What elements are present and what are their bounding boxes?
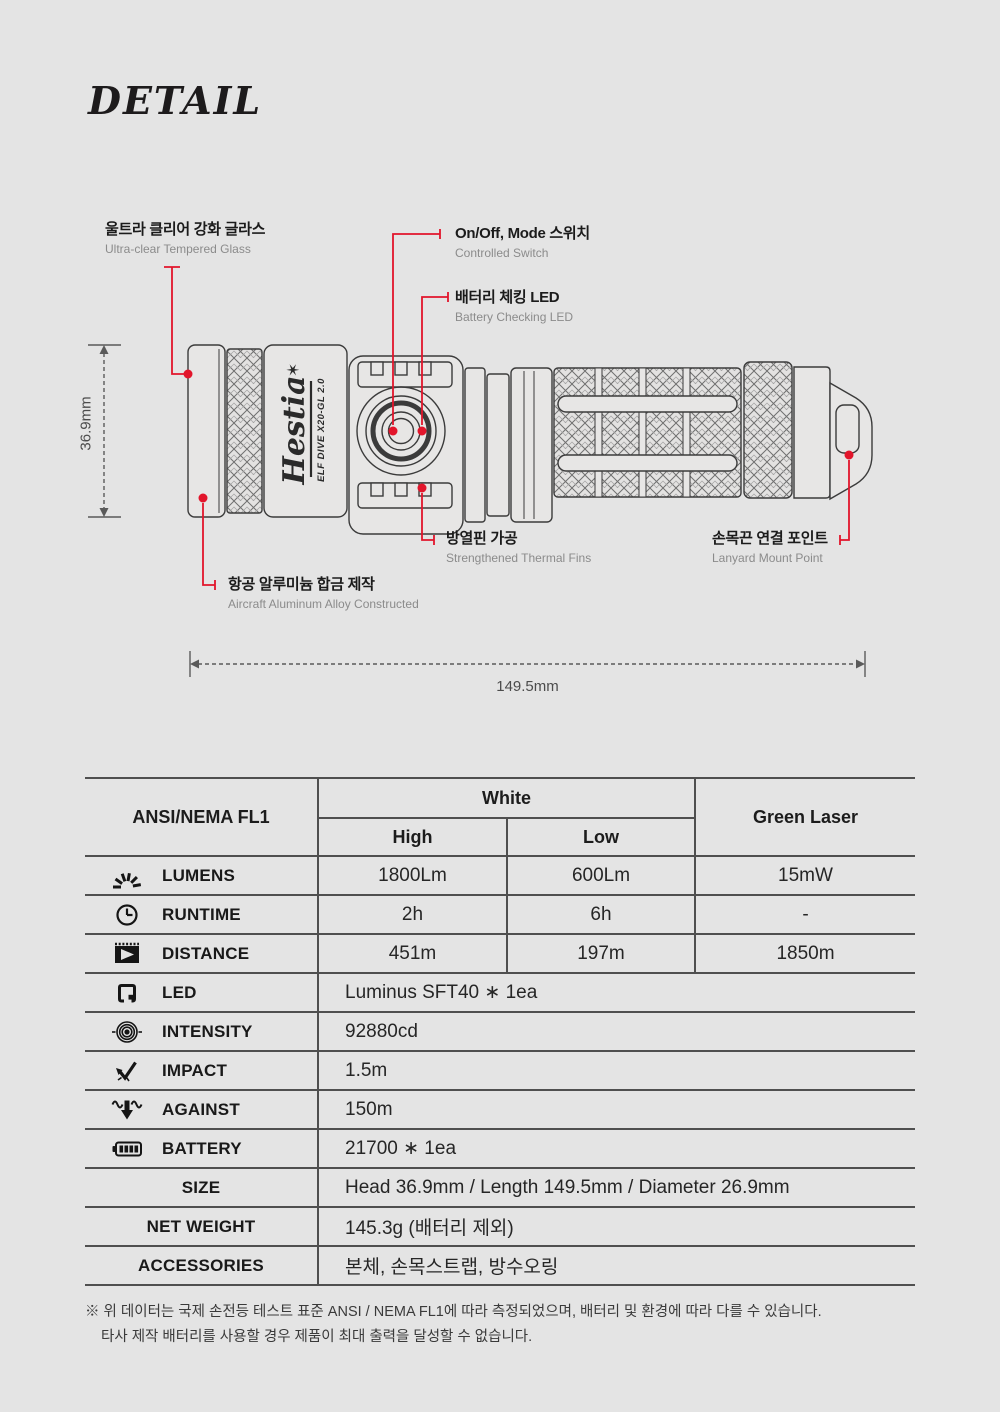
size-value: Head 36.9mm / Length 149.5mm / Diameter … (318, 1168, 915, 1207)
callout-en: Aircraft Aluminum Alloy Constructed (228, 597, 419, 611)
table-row-lumens: LUMENS 1800Lm 600Lm 15mW (85, 856, 915, 895)
callout-battery-led: 배터리 체킹 LED Battery Checking LED (455, 286, 573, 324)
spec-label: NET WEIGHT (147, 1217, 256, 1237)
intensity-value: 92880cd (318, 1012, 915, 1051)
header-green-laser: Green Laser (695, 778, 915, 856)
spec-label: RUNTIME (162, 905, 241, 925)
callout-thermal-fins: 방열핀 가공 Strengthened Thermal Fins (446, 527, 591, 565)
runtime-high: 2h (318, 895, 507, 934)
callout-lanyard: 손목끈 연결 포인트 Lanyard Mount Point (712, 527, 828, 565)
runtime-laser: - (695, 895, 915, 934)
callout-mode-switch: On/Off, Mode 스위치 Controlled Switch (455, 222, 590, 260)
distance-icon (105, 941, 149, 967)
spec-table-section: ANSI/NEMA FL1 White Green Laser High Low (85, 777, 915, 1286)
callout-en: Controlled Switch (455, 246, 590, 260)
header-white: White (318, 778, 695, 818)
table-row-led: LED Luminus SFT40 ∗ 1ea (85, 973, 915, 1012)
spec-label: DISTANCE (162, 944, 249, 964)
table-row-intensity: INTENSITY 92880cd (85, 1012, 915, 1051)
callout-ko: 항공 알루미늄 합금 제작 (228, 573, 419, 594)
table-row-distance: DISTANCE 451m 197m 1850m (85, 934, 915, 973)
table-row-impact: IMPACT 1.5m (85, 1051, 915, 1090)
runtime-icon (105, 903, 149, 927)
distance-laser: 1850m (695, 934, 915, 973)
dimension-length-label: 149.5mm (190, 678, 865, 695)
lumens-icon (105, 863, 149, 889)
lumens-high: 1800Lm (318, 856, 507, 895)
led-icon (105, 981, 149, 1005)
lumens-laser: 15mW (695, 856, 915, 895)
accessories-value: 본체, 손목스트랩, 방수오링 (318, 1246, 915, 1285)
against-icon (105, 1097, 149, 1123)
impact-value: 1.5m (318, 1051, 915, 1090)
product-branding: Hestia ✶ ELF DIVE X20-GL 2.0 (277, 363, 327, 486)
header-low: Low (507, 818, 695, 856)
callout-ko: 손목끈 연결 포인트 (712, 527, 828, 548)
header-standard: ANSI/NEMA FL1 (85, 778, 318, 856)
battery-value: 21700 ∗ 1ea (318, 1129, 915, 1168)
spec-label: IMPACT (162, 1061, 227, 1081)
against-value: 150m (318, 1090, 915, 1129)
distance-high: 451m (318, 934, 507, 973)
tail-cap (794, 367, 830, 498)
callout-en: Lanyard Mount Point (712, 551, 828, 565)
footnote-line1: ※ 위 데이터는 국제 손전등 테스트 표준 ANSI / NEMA FL1에 … (85, 1300, 947, 1325)
neck-ring (465, 368, 485, 522)
page-title: DETAIL (88, 78, 262, 123)
body-groove (558, 455, 737, 471)
distance-low: 197m (507, 934, 695, 973)
spec-label: BATTERY (162, 1139, 242, 1159)
lanyard-hole (836, 405, 859, 453)
impact-icon (105, 1058, 149, 1084)
table-row-net-weight: NET WEIGHT 145.3g (배터리 제외) (85, 1207, 915, 1246)
spec-label: AGAINST (162, 1100, 240, 1120)
spec-label: LUMENS (162, 866, 235, 886)
callout-tempered-glass: 울트라 클리어 강화 글라스 Ultra-clear Tempered Glas… (105, 218, 265, 256)
runtime-low: 6h (507, 895, 695, 934)
callout-ko: On/Off, Mode 스위치 (455, 222, 590, 243)
callout-en: Strengthened Thermal Fins (446, 551, 591, 565)
table-row-accessories: ACCESSORIES 본체, 손목스트랩, 방수오링 (85, 1246, 915, 1285)
footnote: ※ 위 데이터는 국제 손전등 테스트 표준 ANSI / NEMA FL1에 … (85, 1300, 947, 1351)
spec-label: SIZE (182, 1178, 221, 1198)
callout-ko: 방열핀 가공 (446, 527, 591, 548)
spec-label: INTENSITY (162, 1022, 253, 1042)
logo-text: Hestia (277, 375, 312, 485)
callout-ko: 울트라 클리어 강화 글라스 (105, 218, 265, 239)
neck-ring (511, 368, 552, 522)
callout-en: Ultra-clear Tempered Glass (105, 242, 265, 256)
intensity-icon (105, 1020, 149, 1044)
logo-model-text: ELF DIVE X20-GL 2.0 (316, 378, 327, 482)
callout-ko: 배터리 체킹 LED (455, 286, 573, 307)
logo-star-icon: ✶ (284, 363, 303, 377)
tail-knurl-ring (744, 362, 792, 498)
callout-en: Battery Checking LED (455, 310, 573, 324)
table-row-against: AGAINST 150m (85, 1090, 915, 1129)
led-value: Luminus SFT40 ∗ 1ea (318, 973, 915, 1012)
net-weight-value: 145.3g (배터리 제외) (318, 1207, 915, 1246)
spec-table: ANSI/NEMA FL1 White Green Laser High Low (85, 777, 915, 1286)
spec-label: ACCESSORIES (138, 1256, 264, 1276)
product-diagram: Hestia ✶ ELF DIVE X20-GL 2.0 (0, 215, 1000, 715)
callout-aluminum: 항공 알루미늄 합금 제작 Aircraft Aluminum Alloy Co… (228, 573, 419, 611)
table-row-battery: BATTERY 21700 ∗ 1ea (85, 1129, 915, 1168)
footnote-line2: 타사 제작 배터리를 사용할 경우 제품이 최대 출력을 달성할 수 없습니다. (85, 1325, 947, 1350)
head-knurl-ring (227, 349, 262, 513)
table-row-runtime: RUNTIME 2h 6h - (85, 895, 915, 934)
neck-ring (487, 374, 509, 516)
header-high: High (318, 818, 507, 856)
battery-icon (105, 1140, 149, 1158)
dimension-height-label: 36.9mm (78, 382, 95, 466)
lumens-low: 600Lm (507, 856, 695, 895)
product-detail-page: DETAIL (0, 0, 1000, 1412)
spec-label: LED (162, 983, 197, 1003)
body-groove (558, 396, 737, 412)
table-row-size: SIZE Head 36.9mm / Length 149.5mm / Diam… (85, 1168, 915, 1207)
body-knurl (554, 368, 741, 497)
